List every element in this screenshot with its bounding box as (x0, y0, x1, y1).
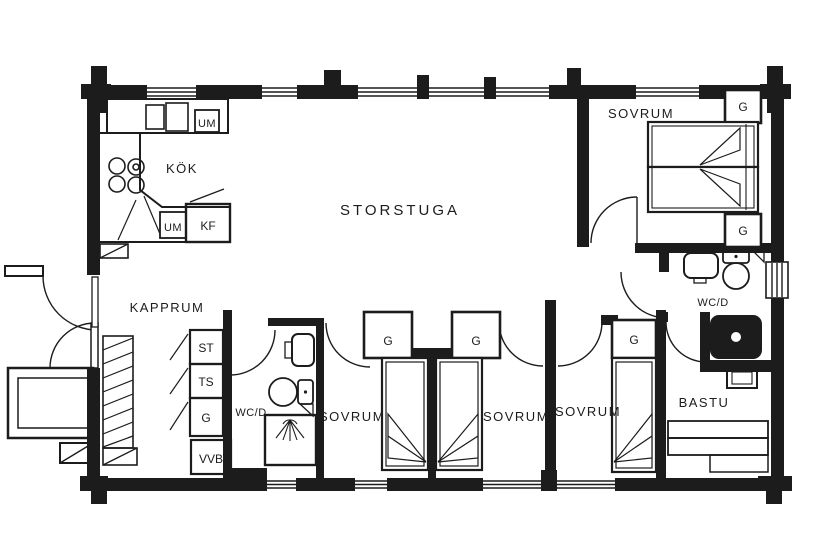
sauna-step (710, 455, 768, 472)
sauna-heater-inner (732, 372, 752, 384)
window (262, 86, 297, 98)
bastu-area (668, 368, 768, 472)
window (267, 479, 296, 490)
wall-segment (771, 298, 784, 478)
label-kok: KÖK (166, 161, 198, 176)
label-bastu: BASTU (679, 395, 730, 410)
stove-burners (109, 158, 144, 193)
doors (5, 197, 706, 375)
bed-a (382, 358, 428, 470)
label-wcd-right: WC/D (697, 297, 728, 309)
label-wcd-left: WC/D (235, 407, 266, 419)
label-g-ne-bottom: G (738, 224, 747, 238)
label-um-lower: UM (164, 222, 182, 234)
label-st: ST (198, 341, 214, 355)
toilet (269, 378, 313, 406)
bedroom-ne-door (591, 197, 637, 243)
wall-under-shower (700, 360, 771, 372)
corner-shower (710, 315, 762, 359)
stair-hatch (103, 336, 137, 465)
label-kapprum: KAPPRUM (130, 300, 205, 315)
label-sovrum-ne: SOVRUM (608, 106, 674, 121)
wall-segment (549, 85, 636, 99)
bed-b (436, 358, 482, 470)
window (358, 86, 417, 98)
wall-wcd-west-stub (659, 252, 669, 272)
label-g-ne-top: G (738, 100, 747, 114)
window (483, 479, 541, 490)
sink-bowl (146, 105, 164, 129)
wall-post (232, 468, 267, 491)
label-kf: KF (200, 219, 215, 233)
window (147, 86, 196, 98)
wall-segment (387, 478, 483, 491)
window (496, 86, 549, 98)
floor-plan-page: STORSTUGA KÖK KAPPRUM SOVRUM SOVRUM SOVR… (0, 0, 830, 555)
washbasin (684, 253, 718, 278)
wall-segment (296, 478, 355, 491)
entry-door-leaf (5, 266, 43, 276)
washbasin (292, 334, 314, 366)
label-g-a: G (383, 334, 392, 348)
label-g-b: G (471, 334, 480, 348)
sink-bowl (166, 103, 188, 131)
double-bed (648, 122, 758, 212)
sauna-bench-upper (668, 421, 768, 438)
washbasin-tap (285, 342, 292, 358)
floor-plan: STORSTUGA KÖK KAPPRUM SOVRUM SOVRUM SOVR… (0, 0, 830, 555)
label-storstuga: STORSTUGA (340, 202, 460, 219)
window (766, 262, 788, 298)
window (557, 479, 615, 490)
sovrum-b-door (499, 322, 543, 366)
wall-segment (87, 85, 100, 275)
entry-porch (8, 368, 93, 463)
wall-wcd-left-top (268, 318, 324, 326)
entry-door-closed-leaf (92, 277, 98, 327)
label-g-kapprum: G (201, 411, 210, 425)
wall-segment (615, 478, 765, 491)
wall-segment (196, 85, 262, 99)
window (429, 86, 484, 98)
entry-inner-door-leaf (91, 323, 98, 368)
kf-door-swing (190, 189, 224, 202)
cabinet-door-marks (170, 334, 188, 430)
window (636, 86, 699, 98)
window (355, 479, 387, 490)
wcd-left-door (230, 330, 275, 375)
wall-segment (107, 85, 147, 99)
wcd-left-fixtures (265, 334, 316, 465)
counter-corner-marks (118, 196, 160, 240)
label-vvb: VVB (199, 452, 223, 466)
log-end (91, 478, 107, 504)
log-end (324, 70, 341, 99)
toilet (723, 250, 749, 289)
wall-segment (771, 85, 784, 262)
wall-bedroom-west (577, 97, 589, 247)
counter-end-diagonal (100, 244, 128, 258)
label-g-c: G (629, 333, 638, 347)
sovrum-c-door (558, 322, 602, 366)
wall-bastu-west (656, 310, 666, 478)
label-um-upper: UM (198, 118, 216, 130)
wall-post (484, 77, 496, 99)
bottom-bedrooms (364, 312, 656, 472)
log-end (766, 478, 782, 504)
shower-head-icon (276, 420, 304, 441)
label-sovrum-a: SOVRUM (319, 409, 385, 424)
wall-segment (108, 478, 232, 491)
label-sovrum-c: SOVRUM (555, 404, 621, 419)
wall-wcd-left-east (316, 322, 324, 478)
label-ts: TS (198, 375, 213, 389)
sauna-bench-lower (668, 438, 768, 455)
porch-inner-line (18, 378, 93, 428)
shower (265, 415, 316, 465)
wall-post (417, 75, 429, 99)
entry-door-arc (43, 276, 97, 330)
label-sovrum-b: SOVRUM (483, 409, 549, 424)
log-end (567, 68, 581, 99)
wall-sovrum-bc (545, 300, 556, 478)
wall-sovrum-ab (428, 352, 436, 478)
